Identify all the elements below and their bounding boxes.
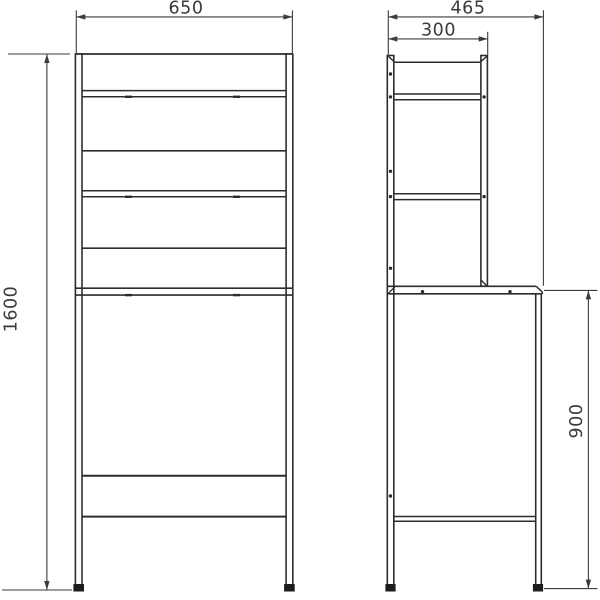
dimension-650: 650 [76, 0, 292, 53]
arrowhead-down [586, 580, 591, 589]
side-right-upper-post [481, 56, 488, 287]
arrowhead-left [76, 14, 85, 19]
fastener-dot [389, 267, 392, 270]
front-right-post [286, 54, 293, 588]
front-left-post [75, 54, 82, 588]
dimension-300-label: 300 [421, 21, 456, 41]
fastener-dot [389, 72, 392, 75]
fastener-dot [482, 95, 485, 98]
dimension-465-label: 465 [451, 0, 486, 19]
side-view [385, 56, 543, 592]
side-left-foot [385, 584, 395, 592]
fastener-dot [389, 170, 392, 173]
fastener-mark [125, 294, 132, 296]
arrowhead-right [283, 14, 292, 19]
front-left-foot [73, 584, 84, 592]
fastener-mark [233, 196, 240, 198]
dimension-900: 900 [544, 290, 598, 588]
drawing-canvas: 650 465 300 1600 900 [0, 0, 600, 600]
fastener-dot [389, 494, 392, 497]
dimension-1600-label: 1600 [2, 286, 22, 333]
arrowhead-left [388, 36, 397, 41]
dimension-465: 465 [388, 0, 543, 286]
fastener-mark [233, 96, 240, 98]
fastener-mark [233, 294, 240, 296]
fastener-dot [508, 290, 511, 293]
arrowhead-up [44, 54, 49, 63]
fastener-mark [125, 196, 132, 198]
front-right-foot [284, 584, 295, 592]
fastener-dot [482, 195, 485, 198]
arrowhead-right [479, 36, 488, 41]
side-right-foot [533, 584, 543, 592]
fastener-dot [389, 195, 392, 198]
dimension-900-label: 900 [567, 404, 587, 439]
side-worktop-right-chamfer [536, 286, 542, 292]
arrowhead-up [586, 290, 591, 299]
dimension-1600: 1600 [2, 54, 73, 590]
side-left-leg [387, 56, 394, 588]
fastener-dot [421, 290, 424, 293]
fastener-mark [125, 96, 132, 98]
front-view [73, 54, 294, 592]
arrowhead-down [44, 581, 49, 590]
dimension-300: 300 [388, 21, 487, 55]
fastener-dot [389, 95, 392, 98]
arrowhead-right [534, 14, 543, 19]
dimension-650-label: 650 [169, 0, 204, 19]
side-right-leg [536, 294, 542, 588]
arrowhead-left [388, 14, 397, 19]
technical-drawing: 650 465 300 1600 900 [0, 0, 600, 600]
